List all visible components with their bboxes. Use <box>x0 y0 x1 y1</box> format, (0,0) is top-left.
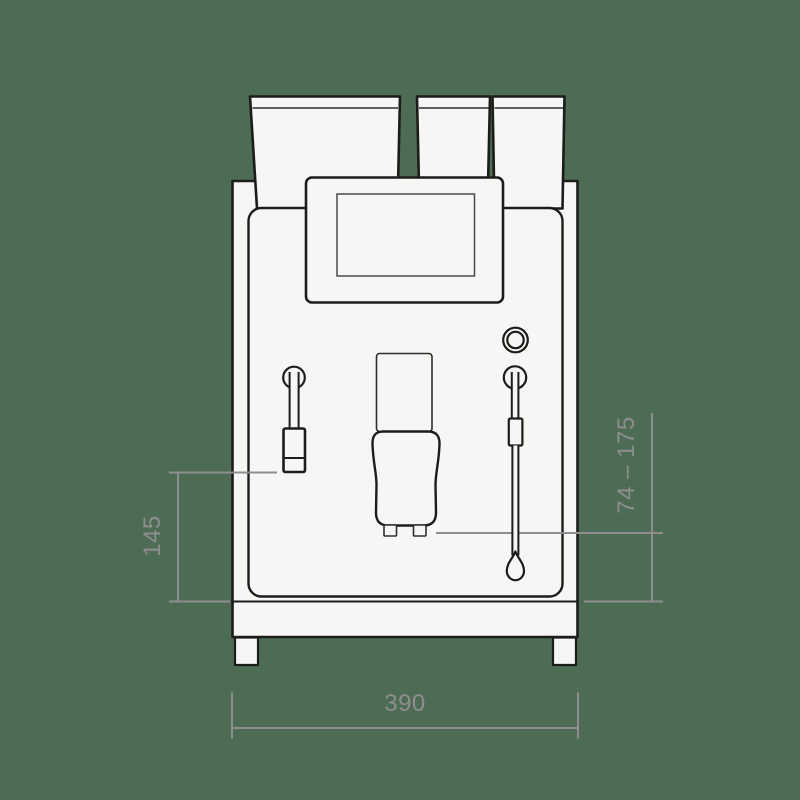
dimension-label-spout-range: 74 – 175 <box>613 416 640 513</box>
milk-frother-tip <box>284 429 306 473</box>
display-panel <box>306 178 503 303</box>
coffee-spout-body <box>372 432 439 526</box>
drawing-stage: 145 74 – 175 390 <box>0 0 800 800</box>
display-screen <box>337 194 475 276</box>
espresso-machine-technical-drawing: 145 74 – 175 390 <box>0 0 800 800</box>
coffee-spout <box>372 354 439 537</box>
foot-left <box>235 638 258 666</box>
foot-right <box>553 638 576 666</box>
dimension-label-height: 145 <box>139 515 166 557</box>
spout-nozzle-left <box>384 525 397 536</box>
steam-wand-grip <box>509 419 523 446</box>
dimension-width: 390 <box>232 690 578 739</box>
coffee-spout-slide <box>377 354 433 432</box>
milk-frother-rod-fill <box>290 372 299 429</box>
dimension-label-width: 390 <box>384 690 426 717</box>
rotary-knob <box>503 328 528 353</box>
rotary-knob-inner-ring <box>507 332 523 348</box>
spout-nozzle-right <box>414 525 427 536</box>
